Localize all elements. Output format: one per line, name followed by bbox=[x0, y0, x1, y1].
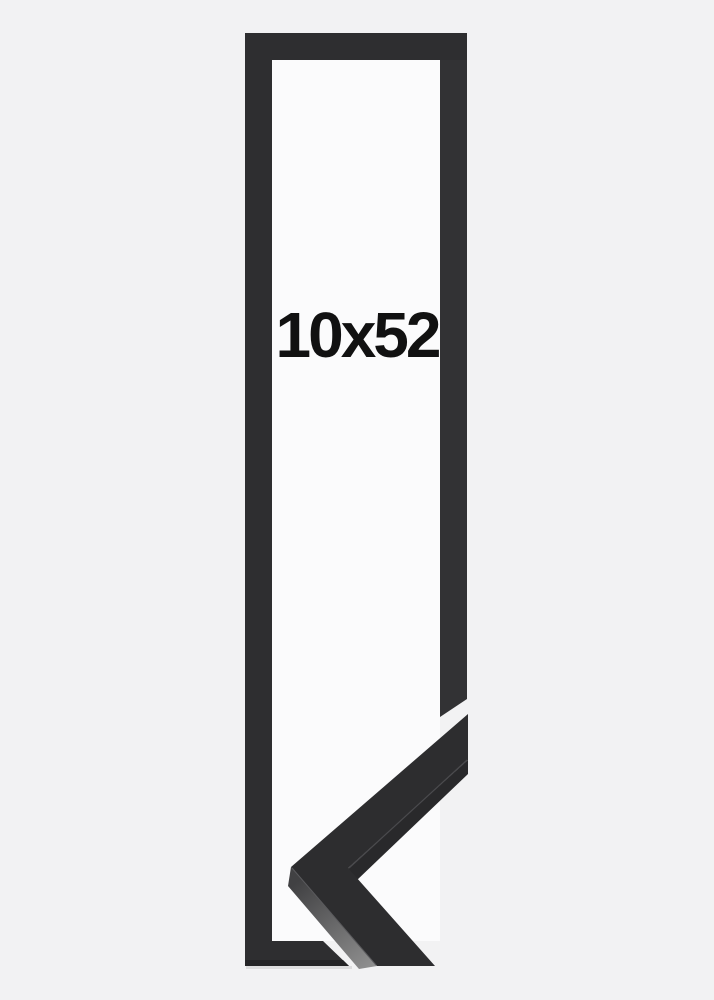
frame-drop-shadow bbox=[246, 966, 352, 969]
frame-right-bar bbox=[440, 60, 467, 717]
frame-bottom-bevel bbox=[245, 960, 349, 966]
frame-top-bar bbox=[245, 33, 467, 60]
frame-left-bar bbox=[245, 33, 272, 966]
product-image: 10x52 bbox=[0, 0, 714, 1000]
size-label: 10x52 bbox=[252, 303, 462, 367]
frame-illustration bbox=[0, 0, 714, 1000]
